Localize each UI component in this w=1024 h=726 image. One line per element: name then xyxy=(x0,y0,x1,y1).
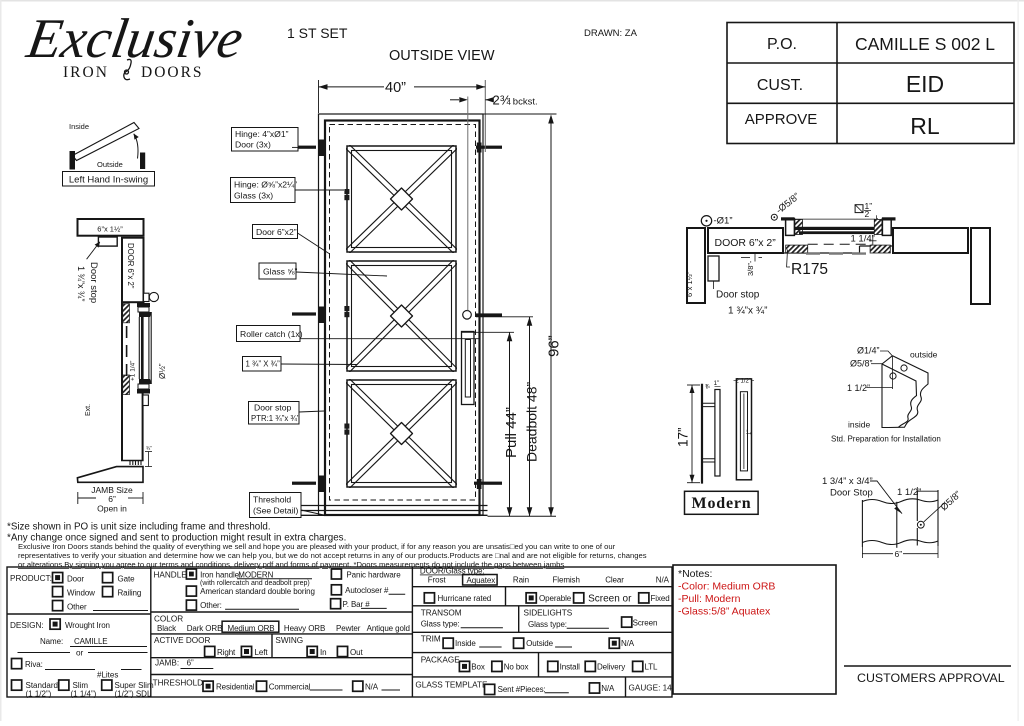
svg-text:Outside: Outside xyxy=(526,639,554,648)
svg-text:CAMILLE: CAMILLE xyxy=(74,637,108,646)
svg-text:Fixed: Fixed xyxy=(651,594,670,603)
svg-text:GAUGE: 14: GAUGE: 14 xyxy=(629,683,673,692)
svg-text:R175: R175 xyxy=(791,261,828,278)
svg-text:(1 1/2”): (1 1/2”) xyxy=(26,689,52,698)
svg-text:APPROVE: APPROVE xyxy=(745,111,818,128)
svg-text:Dark ORB: Dark ORB xyxy=(187,624,223,633)
svg-text:Outside: Outside xyxy=(97,160,123,169)
svg-text:Left: Left xyxy=(255,648,269,657)
svg-text:DRAWN: ZA: DRAWN: ZA xyxy=(584,28,638,39)
svg-text:1 ST SET: 1 ST SET xyxy=(287,25,348,41)
svg-text:Exclusive: Exclusive xyxy=(22,8,247,70)
svg-text:DESIGN:: DESIGN: xyxy=(10,621,44,630)
svg-text:Ext.: Ext. xyxy=(85,404,92,416)
svg-text:CUSTOMERS APPROVAL: CUSTOMERS APPROVAL xyxy=(857,671,1005,685)
svg-text:In: In xyxy=(320,648,326,657)
svg-text:Right: Right xyxy=(217,648,236,657)
svg-text:RL: RL xyxy=(910,113,940,139)
svg-text:PTR:1 ¾”x ¾”: PTR:1 ¾”x ¾” xyxy=(251,414,300,423)
svg-text:Screen: Screen xyxy=(633,618,658,627)
svg-text:Hinge: 4”xØ1”: Hinge: 4”xØ1” xyxy=(235,129,289,139)
svg-text:Black: Black xyxy=(157,624,177,633)
svg-text:Deadbolt 48”: Deadbolt 48” xyxy=(524,381,540,462)
svg-text:6”x 1½”: 6”x 1½” xyxy=(685,271,694,297)
svg-text:CUST.: CUST. xyxy=(757,77,803,94)
svg-text:COLOR: COLOR xyxy=(154,615,183,624)
svg-text:-Pull: Modern: -Pull: Modern xyxy=(678,593,741,605)
svg-text:*Size shown in PO is unit size: *Size shown in PO is unit size including… xyxy=(7,522,271,533)
svg-text:Glass (3x): Glass (3x) xyxy=(234,191,273,201)
svg-text:1 1/4”: 1 1/4” xyxy=(851,234,875,245)
svg-text:Door stop: Door stop xyxy=(254,403,291,413)
svg-text:6”x 1½”: 6”x 1½” xyxy=(97,225,123,234)
svg-text:Open in: Open in xyxy=(97,504,127,514)
svg-text:Door Stop: Door Stop xyxy=(830,488,873,499)
svg-text:JAMB:: JAMB: xyxy=(155,659,179,668)
svg-text:1”: 1” xyxy=(747,430,753,435)
svg-text:PACKAGE: PACKAGE xyxy=(421,656,461,665)
svg-text:IRON: IRON xyxy=(63,64,109,81)
svg-text:Rain: Rain xyxy=(513,576,529,585)
svg-text:Panic hardware: Panic hardware xyxy=(346,570,401,579)
svg-text:40”: 40” xyxy=(385,80,406,96)
svg-text:GLASS TEMPLATE: GLASS TEMPLATE xyxy=(415,680,488,689)
svg-text:P. Bar #: P. Bar # xyxy=(343,600,371,609)
svg-text:” bckst.: ” bckst. xyxy=(507,97,538,108)
svg-text:Other: Other xyxy=(67,603,87,612)
svg-text:1 ¾”x ¾”: 1 ¾”x ¾” xyxy=(728,306,767,317)
svg-text:EID: EID xyxy=(906,71,944,97)
svg-text:Railing: Railing xyxy=(118,589,142,598)
svg-text:1 3/4” x 3/4”: 1 3/4” x 3/4” xyxy=(822,476,873,487)
svg-text:17”: 17” xyxy=(676,427,691,447)
svg-text:SIDELIGHTS: SIDELIGHTS xyxy=(524,609,573,618)
svg-text:SWING: SWING xyxy=(275,636,303,645)
svg-text:Autocloser #: Autocloser # xyxy=(345,586,389,595)
svg-text:Out: Out xyxy=(350,648,363,657)
svg-text:Medium ORB: Medium ORB xyxy=(228,624,275,633)
svg-text:-Color: Medium ORB: -Color: Medium ORB xyxy=(678,581,775,593)
svg-text:Box: Box xyxy=(471,663,485,672)
svg-text:N/A: N/A xyxy=(601,684,615,693)
svg-text:TRIM: TRIM xyxy=(421,635,441,644)
svg-text:Glass type:: Glass type: xyxy=(528,620,567,629)
svg-text:Ø1/4”: Ø1/4” xyxy=(857,346,880,356)
svg-text:or: or xyxy=(76,649,84,658)
svg-text:(1/2”) SDL: (1/2”) SDL xyxy=(115,689,152,698)
svg-text:American standard double borin: American standard double boring xyxy=(200,587,315,596)
svg-text:-Ø1”: -Ø1” xyxy=(714,216,733,227)
svg-text:TRANSOM: TRANSOM xyxy=(421,609,462,618)
svg-text:Heavy ORB: Heavy ORB xyxy=(284,624,325,633)
svg-text:Ø½”: Ø½” xyxy=(158,363,167,379)
svg-text:CAMILLE S 002 L: CAMILLE S 002 L xyxy=(855,34,995,54)
svg-text:Hinge: Ø⅝”x2¼”: Hinge: Ø⅝”x2¼” xyxy=(234,180,297,190)
svg-text:6”: 6” xyxy=(895,549,903,559)
svg-text:LTL: LTL xyxy=(645,663,659,672)
svg-text:Exclusive Iron Doors stands be: Exclusive Iron Doors stands behind the q… xyxy=(18,542,616,551)
svg-text:Window: Window xyxy=(67,589,95,598)
svg-text:¾”: ¾” xyxy=(146,446,152,452)
svg-text:¾: ¾ xyxy=(705,384,710,390)
svg-text:Wrought Iron: Wrought Iron xyxy=(65,621,110,630)
svg-text:Operable: Operable xyxy=(539,594,572,603)
svg-text:P.O.: P.O. xyxy=(767,36,797,53)
svg-text:Commercial: Commercial xyxy=(269,682,311,691)
svg-text:1 1/2”: 1 1/2” xyxy=(847,383,870,393)
svg-text:6”: 6” xyxy=(108,494,116,504)
svg-text:Glass type:: Glass type: xyxy=(421,619,460,628)
svg-text:Hurricane rated: Hurricane rated xyxy=(438,594,492,603)
svg-text:Sent #Pieces:: Sent #Pieces: xyxy=(498,685,546,694)
svg-text:Std. Preparation for Installat: Std. Preparation for Installation xyxy=(831,435,941,444)
svg-text:Door 6”x2”: Door 6”x2” xyxy=(256,227,297,237)
svg-text:Frost: Frost xyxy=(428,576,447,585)
svg-text:Inside: Inside xyxy=(455,639,476,648)
svg-text:Modern: Modern xyxy=(692,495,752,512)
svg-text:1 ¾”x ¾”: 1 ¾”x ¾” xyxy=(76,266,86,302)
svg-text:ACTIVE DOOR: ACTIVE DOOR xyxy=(154,636,210,645)
svg-text:Left Hand In-swing: Left Hand In-swing xyxy=(69,175,148,186)
svg-text:Gate: Gate xyxy=(118,575,136,584)
svg-text:1”: 1” xyxy=(714,380,720,387)
svg-text:N/A: N/A xyxy=(365,682,379,691)
svg-text:Antique gold: Antique gold xyxy=(367,624,410,633)
svg-text:+1 1/4”: +1 1/4” xyxy=(130,361,137,381)
svg-text:Riva:: Riva: xyxy=(25,660,43,669)
svg-text:Glass ⅝”: Glass ⅝” xyxy=(263,267,298,277)
svg-text:N/A: N/A xyxy=(656,576,670,585)
svg-text:DOORS: DOORS xyxy=(141,64,204,81)
svg-text:Door stop: Door stop xyxy=(88,262,99,303)
svg-text:representatives to verify your: representatives to verify your situation… xyxy=(18,551,647,560)
svg-text:HANDLE: HANDLE xyxy=(154,571,188,580)
svg-text:-Glass:5/8” Aquatex: -Glass:5/8” Aquatex xyxy=(678,606,771,618)
svg-text:inside: inside xyxy=(848,420,870,430)
svg-text:3/8”-: 3/8”- xyxy=(746,260,755,276)
svg-text:Door (3x): Door (3x) xyxy=(235,140,271,150)
svg-text:Other:: Other: xyxy=(200,601,222,610)
svg-text:(1 1/4”): (1 1/4”) xyxy=(71,689,97,698)
svg-text:#Lites: #Lites xyxy=(97,671,118,680)
svg-text:MODERN: MODERN xyxy=(238,570,273,579)
svg-text:(See Detail): (See Detail) xyxy=(253,506,299,516)
svg-text:DOOR 6”x 2”: DOOR 6”x 2” xyxy=(715,237,777,249)
svg-text:OUTSIDE VIEW: OUTSIDE VIEW xyxy=(389,48,495,64)
svg-text:Flemish: Flemish xyxy=(553,576,580,585)
svg-text:(with rollercatch and deadbolt: (with rollercatch and deadbolt prep) xyxy=(200,580,310,587)
svg-text:Door stop: Door stop xyxy=(716,290,760,301)
svg-text:No box: No box xyxy=(504,663,529,672)
svg-text:DOOR 6”x 2”: DOOR 6”x 2” xyxy=(126,243,135,289)
svg-text:Delivery: Delivery xyxy=(597,663,625,672)
svg-text:96”: 96” xyxy=(546,335,563,357)
svg-text:Roller catch (1x): Roller catch (1x) xyxy=(240,329,303,339)
svg-text:Clear: Clear xyxy=(605,576,624,585)
svg-text:Pewter: Pewter xyxy=(336,624,361,633)
svg-text:*Notes:: *Notes: xyxy=(678,568,712,580)
svg-text:Iron handle:: Iron handle: xyxy=(200,570,241,579)
svg-text:Name:: Name: xyxy=(40,637,63,646)
svg-text:Aquatex: Aquatex xyxy=(467,576,496,585)
svg-text:Pull 44”: Pull 44” xyxy=(503,407,520,458)
svg-text:6”: 6” xyxy=(187,659,194,668)
svg-text:Door: Door xyxy=(67,575,84,584)
svg-text:outside: outside xyxy=(910,350,938,360)
svg-text:Screen or: Screen or xyxy=(588,594,632,605)
svg-text:Install: Install xyxy=(560,663,581,672)
svg-text:N/A: N/A xyxy=(621,639,635,648)
svg-text:Threshold: Threshold xyxy=(253,495,291,505)
svg-text:THRESHOLD: THRESHOLD xyxy=(153,679,204,688)
svg-text:1 ¾” X ¾”: 1 ¾” X ¾” xyxy=(246,360,281,369)
svg-text:Residential: Residential xyxy=(216,682,255,691)
svg-text:PRODUCT:: PRODUCT: xyxy=(10,574,52,583)
svg-text:Inside: Inside xyxy=(69,122,89,131)
svg-text:2 1/2”: 2 1/2” xyxy=(736,379,751,385)
svg-text:Ø5/8”: Ø5/8” xyxy=(850,359,873,369)
